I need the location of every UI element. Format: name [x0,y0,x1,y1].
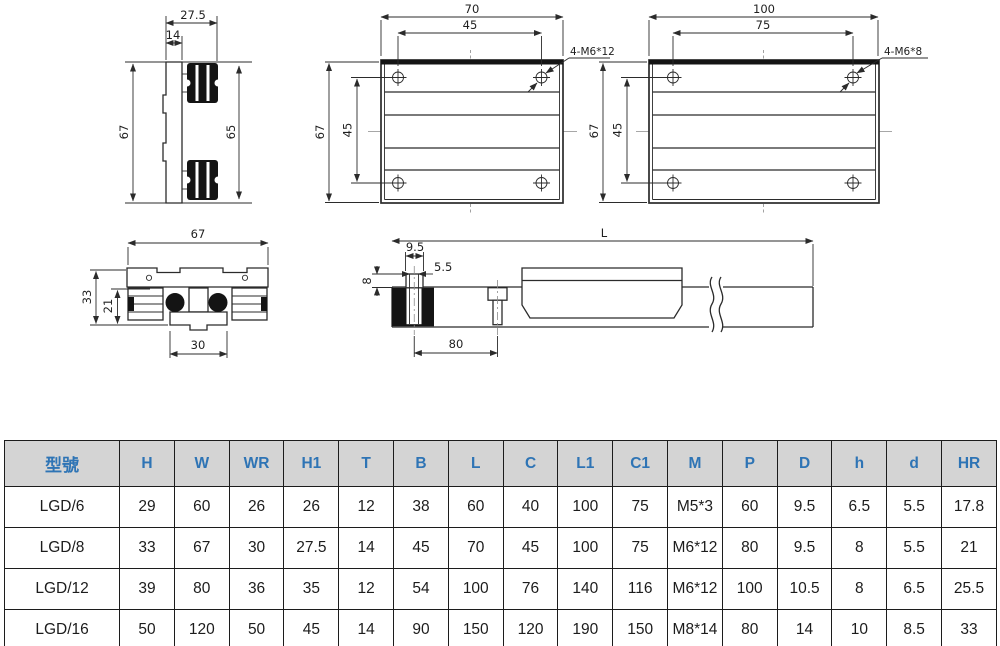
dimension-label: 80 [449,337,464,351]
column-header-14: h [832,441,887,487]
dimension-label: 67 [117,125,131,140]
thread-callout: 4-M6*12 [570,46,615,58]
column-header-12: P [722,441,777,487]
dimension-label: 65 [224,125,238,140]
table-cell: 10.5 [777,569,832,610]
dimension-label: 14 [166,28,181,42]
dimension-label: 45 [341,123,355,138]
column-header-16: HR [942,441,997,487]
table-cell: 27.5 [284,528,339,569]
table-cell: 80 [174,569,229,610]
technical-drawings: 67 65 27.5 14 [0,0,1000,440]
table-cell: 12 [339,569,394,610]
table-cell: 120 [174,610,229,646]
table-cell: 54 [394,569,449,610]
table-cell: 67 [174,528,229,569]
column-header-8: C [503,441,558,487]
row-model: LGD/8 [5,528,120,569]
dimension-label: 67 [587,124,601,139]
table-cell: 45 [503,528,558,569]
column-header-2: W [174,441,229,487]
dimension-label: 45 [463,18,478,32]
table-row: LGD/165012050451490150120190150M8*148014… [5,610,997,646]
table-row: LGD/6296026261238604010075M5*3609.56.55.… [5,487,997,528]
table-cell: 50 [229,610,284,646]
table-cell: M5*3 [668,487,723,528]
table-cell: 45 [394,528,449,569]
table-cell: M8*14 [668,610,723,646]
table-cell: 76 [503,569,558,610]
table-cell: 80 [722,528,777,569]
dimension-label: 33 [80,290,94,305]
roller-block-left [128,288,163,320]
table-cell: 40 [503,487,558,528]
dimension-label: 67 [191,227,206,241]
column-header-1: H [120,441,175,487]
column-header-13: D [777,441,832,487]
table-cell: 100 [558,528,613,569]
table-cell: 100 [558,487,613,528]
roller-block-right [232,288,267,320]
table-cell: 70 [448,528,503,569]
table-cell: 80 [722,610,777,646]
roller-section-right [209,293,228,312]
table-cell: 39 [120,569,175,610]
table-cell: 33 [120,528,175,569]
dimension-label: 9.5 [406,240,424,254]
table-cell: 5.5 [887,487,942,528]
table-cell: 38 [394,487,449,528]
column-header-6: B [394,441,449,487]
roller-section-left [166,293,185,312]
table-cell: 35 [284,569,339,610]
carriage-block [522,268,682,318]
table-cell: 10 [832,610,887,646]
table-cell: 12 [339,487,394,528]
table-cell: 50 [120,610,175,646]
thread-callout: 4-M6*8 [884,46,922,58]
rail-foot [170,312,227,330]
column-header-3: WR [229,441,284,487]
row-model: LGD/16 [5,610,120,646]
table-cell: 75 [613,487,668,528]
table-cell: 90 [394,610,449,646]
column-header-5: T [339,441,394,487]
dimension-label: 100 [753,2,775,16]
table-cell: 140 [558,569,613,610]
top-view-plate-100: 100 75 67 45 4-M6*8 [587,2,928,214]
table-cell: 26 [229,487,284,528]
table-cell: 150 [448,610,503,646]
column-header-9: L1 [558,441,613,487]
carriage-top-plate [127,268,268,287]
table-cell: 8 [832,528,887,569]
table-cell: M6*12 [668,528,723,569]
side-profile-view: 67 65 27.5 14 [117,8,252,203]
dimension-label: 30 [191,338,206,352]
table-cell: 100 [722,569,777,610]
table-cell: 6.5 [887,569,942,610]
row-model: LGD/6 [5,487,120,528]
table-cell: 8 [832,569,887,610]
rail-side-view: L 9.5 5.5 8 80 [360,226,813,357]
spec-table-container: 型號HWWRH1TBLCL1C1MPDhdHR LGD/629602626123… [0,440,1000,646]
table-cell: 25.5 [942,569,997,610]
dimension-label: 67 [313,125,327,140]
table-cell: 60 [722,487,777,528]
profile-body [163,62,182,203]
column-header-0: 型號 [5,441,120,487]
table-cell: 6.5 [832,487,887,528]
table-cell: 60 [174,487,229,528]
table-cell: M6*12 [668,569,723,610]
dimension-label: L [601,226,608,240]
table-cell: 26 [284,487,339,528]
dimension-label: 45 [611,123,625,138]
table-cell: 14 [339,610,394,646]
table-cell: 75 [613,528,668,569]
rail-web [189,288,208,312]
table-cell: 190 [558,610,613,646]
roller-top [184,63,222,103]
table-cell: 100 [448,569,503,610]
table-cell: 14 [339,528,394,569]
dimension-label: 27.5 [180,8,206,22]
dimension-label: 70 [465,2,480,16]
table-row: LGD/1239803635125410076140116M6*1210010.… [5,569,997,610]
datasheet-page: 67 65 27.5 14 [0,0,1000,646]
column-header-10: C1 [613,441,668,487]
table-cell: 8.5 [887,610,942,646]
table-cell: 30 [229,528,284,569]
dimension-label: 5.5 [434,260,452,274]
table-cell: 21 [942,528,997,569]
table-cell: 14 [777,610,832,646]
dimension-label: 21 [101,299,115,314]
table-cell: 45 [284,610,339,646]
top-view-plate-70: 70 45 67 45 4-M6*12 [313,2,615,214]
table-cell: 120 [503,610,558,646]
dimension-label: 8 [360,277,374,284]
table-cell: 116 [613,569,668,610]
table-cell: 36 [229,569,284,610]
table-cell: 60 [448,487,503,528]
table-row: LGD/833673027.51445704510075M6*12809.585… [5,528,997,569]
row-model: LGD/12 [5,569,120,610]
table-cell: 5.5 [887,528,942,569]
table-header-row: 型號HWWRH1TBLCL1C1MPDhdHR [5,441,997,487]
table-cell: 17.8 [942,487,997,528]
table-cell: 29 [120,487,175,528]
spec-table: 型號HWWRH1TBLCL1C1MPDhdHR LGD/629602626123… [4,440,997,646]
cross-section-view: 67 33 21 30 [80,227,268,358]
roller-bottom [184,160,222,200]
column-header-11: M [668,441,723,487]
column-header-15: d [887,441,942,487]
column-header-7: L [448,441,503,487]
table-cell: 9.5 [777,487,832,528]
dimension-label: 75 [756,18,771,32]
column-header-4: H1 [284,441,339,487]
table-cell: 150 [613,610,668,646]
table-cell: 9.5 [777,528,832,569]
table-cell: 33 [942,610,997,646]
